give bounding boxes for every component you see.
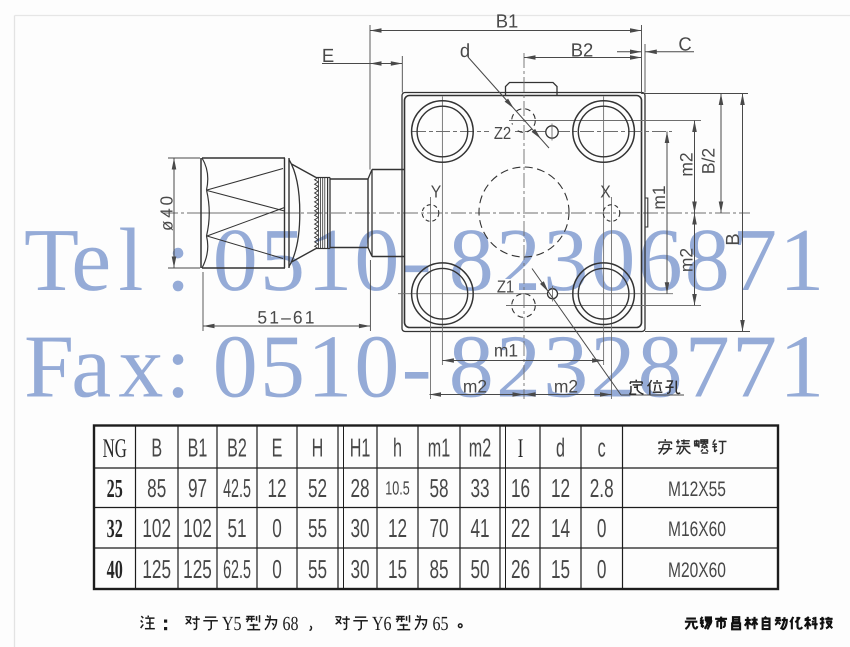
svg-text:E: E [272,433,283,463]
svg-text:62.5: 62.5 [223,554,251,584]
svg-text:X: X [600,182,611,202]
svg-text:m1: m1 [649,185,669,209]
svg-text:0: 0 [597,513,607,543]
svg-text:41: 41 [470,513,489,543]
svg-text:B/2: B/2 [699,148,719,174]
svg-text:97: 97 [188,473,207,503]
svg-text:52: 52 [308,473,327,503]
svg-text:Fax:0510-82328771: Fax:0510-82328771 [24,318,824,417]
svg-text:12: 12 [551,473,570,503]
svg-text:125: 125 [183,554,212,584]
svg-text:32: 32 [107,514,123,543]
svg-text:55: 55 [308,554,327,584]
svg-text:68: 68 [283,613,299,635]
svg-text:26: 26 [511,554,530,584]
svg-text:58: 58 [429,473,448,503]
svg-text:30: 30 [350,554,369,584]
svg-text:I: I [518,433,524,463]
svg-text:H1: H1 [350,433,371,463]
svg-text:102: 102 [183,513,212,543]
svg-text:0: 0 [597,554,607,584]
svg-text:m2: m2 [677,152,697,176]
svg-text:16: 16 [511,473,530,503]
svg-text:H: H [312,433,324,463]
svg-text:Z2: Z2 [494,123,511,143]
svg-text:m2: m2 [463,377,487,397]
svg-text:125: 125 [142,554,171,584]
svg-text:ø40: ø40 [157,193,177,231]
svg-text:85: 85 [429,554,448,584]
svg-text:B2: B2 [227,433,247,463]
svg-text:42.5: 42.5 [223,473,251,503]
svg-text:NG: NG [103,433,127,463]
svg-text:B1: B1 [188,433,208,463]
svg-text:2.8: 2.8 [590,473,614,503]
svg-text:22: 22 [511,513,530,543]
svg-text:E: E [322,46,334,67]
svg-text:65: 65 [433,613,449,635]
svg-text:70: 70 [429,513,448,543]
svg-text:B1: B1 [496,12,519,33]
svg-text:Y: Y [431,182,442,202]
svg-text:15: 15 [551,554,570,584]
svg-text:m1: m1 [428,433,450,463]
svg-text:12: 12 [267,473,286,503]
svg-text:d: d [460,41,470,62]
svg-text:102: 102 [142,513,171,543]
svg-text:85: 85 [147,473,166,503]
svg-text:Y5: Y5 [222,613,242,635]
svg-text:0: 0 [272,554,282,584]
svg-text:B: B [151,433,162,463]
svg-text:30: 30 [350,513,369,543]
svg-text:12: 12 [388,513,407,543]
svg-text:B: B [723,233,744,245]
svg-text:M16X60: M16X60 [668,518,726,541]
svg-text:51: 51 [227,513,246,543]
svg-text:55: 55 [308,513,327,543]
svg-text:50: 50 [470,554,489,584]
svg-text:d: d [556,433,565,463]
svg-text:28: 28 [350,473,369,503]
svg-text:0: 0 [272,513,282,543]
svg-text:m2: m2 [677,248,697,272]
svg-text:14: 14 [551,513,570,543]
svg-text:10.5: 10.5 [385,479,409,500]
svg-text:M12X55: M12X55 [668,478,726,501]
svg-text:C: C [678,35,691,56]
svg-text:40: 40 [107,555,123,584]
svg-text:Y6: Y6 [372,613,392,635]
svg-text:25: 25 [107,474,123,503]
svg-text:m2: m2 [469,433,491,463]
svg-text:m1: m1 [494,341,518,361]
svg-text:15: 15 [388,554,407,584]
svg-text:M20X60: M20X60 [668,559,726,582]
svg-text:B2: B2 [571,41,594,62]
svg-text:m2: m2 [554,377,578,397]
svg-text:Z1: Z1 [497,277,514,297]
svg-text:51–61: 51–61 [257,308,316,328]
svg-text:33: 33 [470,473,489,503]
svg-text:h: h [393,433,402,463]
svg-text:c: c [598,433,606,463]
